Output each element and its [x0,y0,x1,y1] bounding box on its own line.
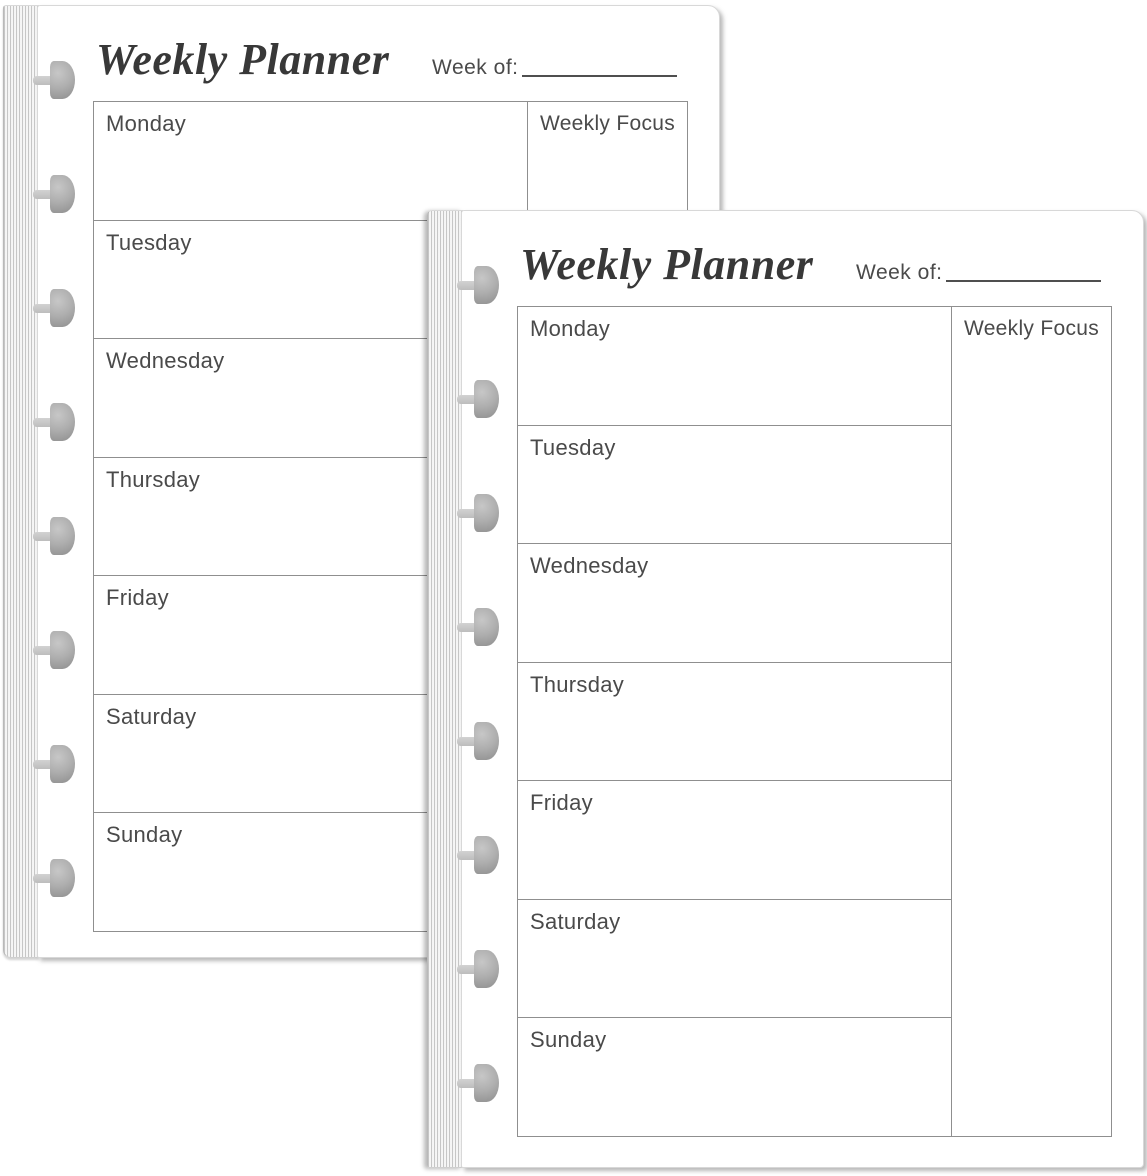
week-of-label: Week of: [856,260,942,285]
binding-disc [455,608,499,646]
disc-head [50,403,75,441]
week-of-underline [946,280,1101,282]
week-of-underline [522,75,677,77]
disc-head [474,722,499,760]
binding-disc [31,61,75,99]
disc-head [50,631,75,669]
week-of-field: Week of: [432,55,677,80]
page-title: Weekly Planner [520,241,813,289]
disc-head [474,266,499,304]
disc-head [50,517,75,555]
planner-product-image: Weekly Planner Week of: Monday Tuesday W… [0,0,1147,1176]
disc-head [474,608,499,646]
day-cell-monday: Monday [94,102,527,221]
day-cell-thursday: Thursday [518,663,951,782]
disc-head [474,950,499,988]
disc-head [474,836,499,874]
planner-sheet: Weekly Planner Week of: Monday Tuesday W… [461,210,1144,1168]
binding-disc [31,517,75,555]
week-of-field: Week of: [856,260,1101,285]
binding-disc [455,722,499,760]
disc-head [50,745,75,783]
binding-disc [455,380,499,418]
page-edge-spine [3,5,39,958]
binding-disc [31,631,75,669]
week-of-label: Week of: [432,55,518,80]
binding-disc [455,836,499,874]
day-column: Monday Tuesday Wednesday Thursday Friday… [518,307,952,1136]
binding-disc [31,175,75,213]
page-title: Weekly Planner [96,36,389,84]
day-cell-saturday: Saturday [518,900,951,1019]
weekly-focus-column: Weekly Focus [952,307,1111,1136]
disc-head [50,175,75,213]
disc-head [474,380,499,418]
day-cell-friday: Friday [518,781,951,900]
day-cell-sunday: Sunday [518,1018,951,1136]
binding-disc [455,494,499,532]
disc-head [50,61,75,99]
day-cell-wednesday: Wednesday [518,544,951,663]
disc-head [474,494,499,532]
disc-head [474,1064,499,1102]
disc-head [50,289,75,327]
binding-disc [31,745,75,783]
day-cell-monday: Monday [518,307,951,426]
page-edge-spine [427,210,463,1168]
binding-disc [455,950,499,988]
binding-disc [31,289,75,327]
day-cell-tuesday: Tuesday [518,426,951,545]
binding-disc [31,859,75,897]
disc-head [50,859,75,897]
binding-disc [455,1064,499,1102]
weekly-table: Monday Tuesday Wednesday Thursday Friday… [517,306,1112,1137]
binding-disc [455,266,499,304]
planner-page-front: Weekly Planner Week of: Monday Tuesday W… [427,210,1144,1168]
binding-disc [31,403,75,441]
